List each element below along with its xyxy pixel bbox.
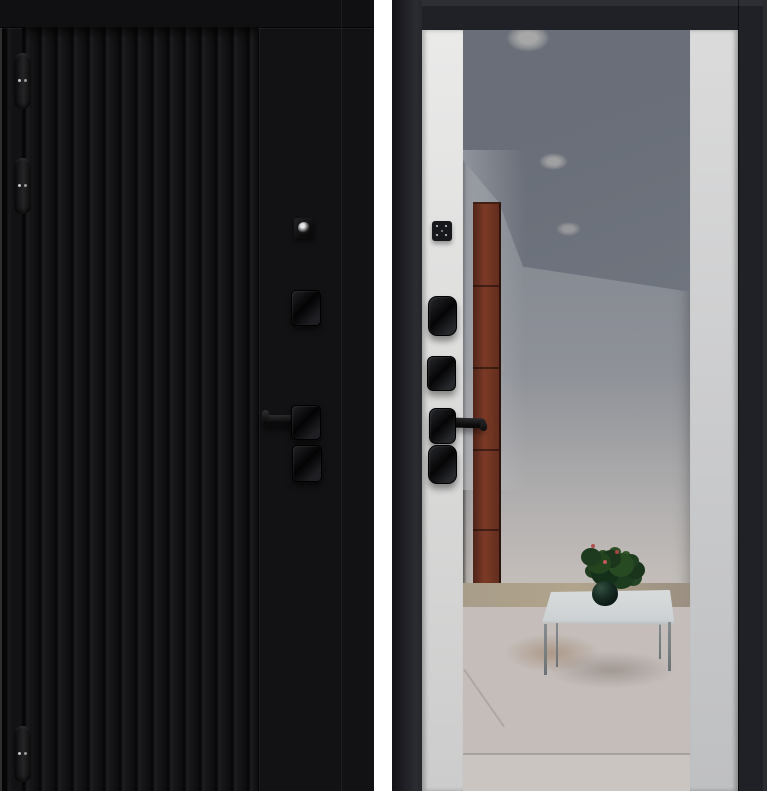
cabinet-seam	[473, 529, 499, 531]
door-left-edge-frame	[0, 0, 12, 791]
plate-screw	[445, 225, 447, 227]
cabinet-seam	[473, 285, 499, 287]
hinge-bottom	[14, 726, 31, 782]
fluted-panel	[22, 27, 258, 791]
floor-tile-seam-diagonal	[463, 669, 505, 727]
door-handle-lever-tip	[480, 422, 487, 431]
plate-screw	[436, 225, 438, 227]
table-leg-front-right	[668, 622, 671, 671]
door-edge-highlight	[341, 0, 342, 791]
white-panel-right	[690, 30, 738, 791]
handle-rosette	[429, 408, 456, 444]
hinge-screw	[18, 79, 21, 82]
plant-foliage	[581, 548, 601, 566]
hinge-top	[14, 53, 31, 109]
stile-seam	[258, 27, 259, 791]
plate-center-pin	[441, 230, 443, 232]
product-photo-canvas	[0, 0, 767, 791]
photo-divider-gap	[374, 0, 392, 791]
hinge-screw	[18, 752, 21, 755]
full-height-mirror	[463, 30, 690, 791]
floor-lower-tile	[463, 755, 690, 791]
door-top-rail	[0, 0, 374, 28]
table-leg-front-left	[544, 624, 547, 675]
reflection-floor	[463, 607, 690, 791]
hinge-middle	[14, 158, 31, 214]
door-handle-lever-tip	[262, 410, 269, 420]
secondary-lock-escutcheon	[427, 356, 456, 391]
plant-flower	[615, 550, 619, 554]
reflection-cabinet	[473, 202, 501, 609]
door-interior-view	[392, 0, 767, 791]
hinge-screw	[18, 184, 21, 187]
frame-top-edge	[392, 0, 767, 6]
cabinet-seam	[473, 449, 499, 451]
plate-screw	[445, 234, 447, 236]
floor-tile-seam	[463, 753, 690, 755]
peephole-lens	[298, 222, 310, 234]
frame-right-edge	[763, 0, 767, 791]
handle-rosette	[291, 405, 321, 440]
plant-pot	[592, 581, 618, 606]
recessed-light-2	[539, 153, 568, 170]
plate-screw	[436, 234, 438, 236]
plant-flower	[591, 544, 595, 548]
plant-flower	[603, 560, 607, 564]
peephole-cylinder-plate	[294, 218, 314, 239]
frame-right-seam	[738, 0, 739, 791]
hinge-screw	[24, 79, 27, 82]
cabinet-seam	[473, 367, 499, 369]
thumbturn-plate	[432, 221, 452, 241]
door-exterior-view	[0, 0, 374, 791]
hinge-screw	[24, 752, 27, 755]
upper-lock-escutcheon	[291, 290, 321, 326]
upper-lock-escutcheon	[428, 296, 457, 336]
recessed-light-3	[556, 222, 581, 236]
hinge-screw	[24, 184, 27, 187]
table-leg-back-left	[556, 622, 558, 667]
frame-left	[392, 0, 422, 791]
table-leg-back-right	[659, 620, 661, 659]
lower-lock-escutcheon	[292, 445, 322, 482]
lower-lock-escutcheon	[428, 445, 457, 484]
